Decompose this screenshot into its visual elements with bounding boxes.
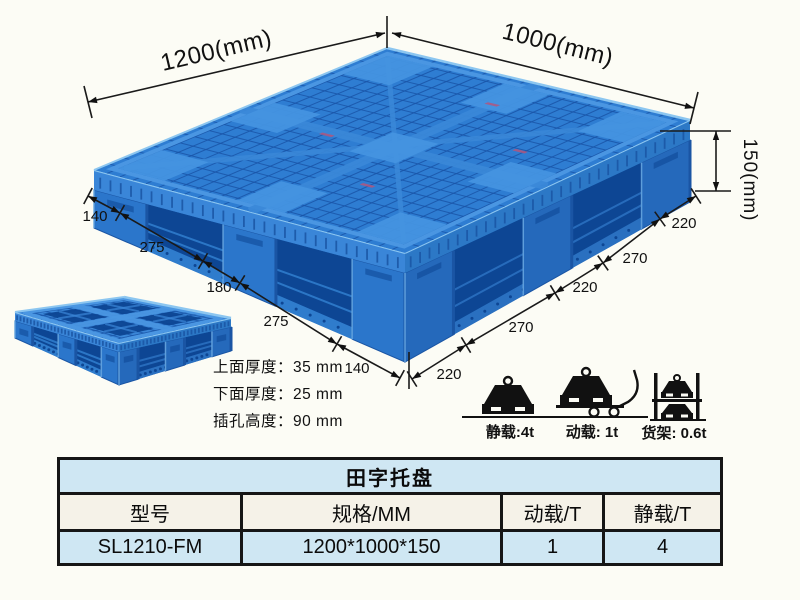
table-header-row: 型号 规格/MM 动载/T 静载/T bbox=[59, 494, 722, 531]
dimension-label: 140 bbox=[82, 208, 107, 225]
table-data-row: SL1210-FM 1200*1000*150 1 4 bbox=[59, 531, 722, 565]
note-top-thickness: 上面厚度：35 mm bbox=[213, 354, 343, 381]
load-rating-icons: 静载:4t 动载: 1t 货架: 0.6t bbox=[462, 368, 707, 442]
dynamic-load-label: 动载: 1t bbox=[566, 423, 619, 441]
static-load-icon bbox=[482, 377, 534, 414]
dimension-label: 220 bbox=[436, 366, 461, 383]
dimension-label: 180 bbox=[206, 279, 231, 296]
dimension-label: 140 bbox=[344, 360, 369, 377]
note-fork-height: 插孔高度：90 mm bbox=[213, 408, 343, 435]
cell-dynamic: 1 bbox=[502, 531, 604, 565]
dimension-label: 270 bbox=[622, 250, 647, 267]
dimension-label: 275 bbox=[263, 313, 288, 330]
table-title: 田字托盘 bbox=[59, 459, 722, 494]
dimension-label: 270 bbox=[508, 319, 533, 336]
spec-table: 田字托盘 型号 规格/MM 动载/T 静载/T SL1210-FM 1200*1… bbox=[57, 457, 723, 566]
cell-spec: 1200*1000*150 bbox=[242, 531, 502, 565]
header-static: 静载/T bbox=[604, 494, 722, 531]
cell-model: SL1210-FM bbox=[59, 531, 242, 565]
header-spec: 规格/MM bbox=[242, 494, 502, 531]
dimension-label: 220 bbox=[671, 215, 696, 232]
note-bottom-thickness: 下面厚度：25 mm bbox=[213, 381, 343, 408]
rack-load-label: 货架: 0.6t bbox=[641, 424, 706, 442]
dynamic-load-icon bbox=[556, 368, 638, 417]
rack-load-icon bbox=[652, 373, 702, 420]
header-model: 型号 bbox=[59, 494, 242, 531]
thickness-notes: 上面厚度：35 mm 下面厚度：25 mm 插孔高度：90 mm bbox=[213, 354, 343, 435]
cell-static: 4 bbox=[604, 531, 722, 565]
dimension-label: 275 bbox=[139, 239, 164, 256]
small-pallet-image bbox=[15, 297, 231, 385]
static-load-label: 静载:4t bbox=[486, 423, 534, 441]
dim-height-label: 150(mm) bbox=[739, 138, 760, 221]
dimension-label: 220 bbox=[572, 279, 597, 296]
pallet-spec-sheet: 140275180275140 220270220270220 1200(mm)… bbox=[0, 0, 800, 600]
header-dynamic: 动载/T bbox=[502, 494, 604, 531]
table-title-row: 田字托盘 bbox=[59, 459, 722, 494]
dim-width-label: 1200(mm) bbox=[158, 25, 275, 77]
